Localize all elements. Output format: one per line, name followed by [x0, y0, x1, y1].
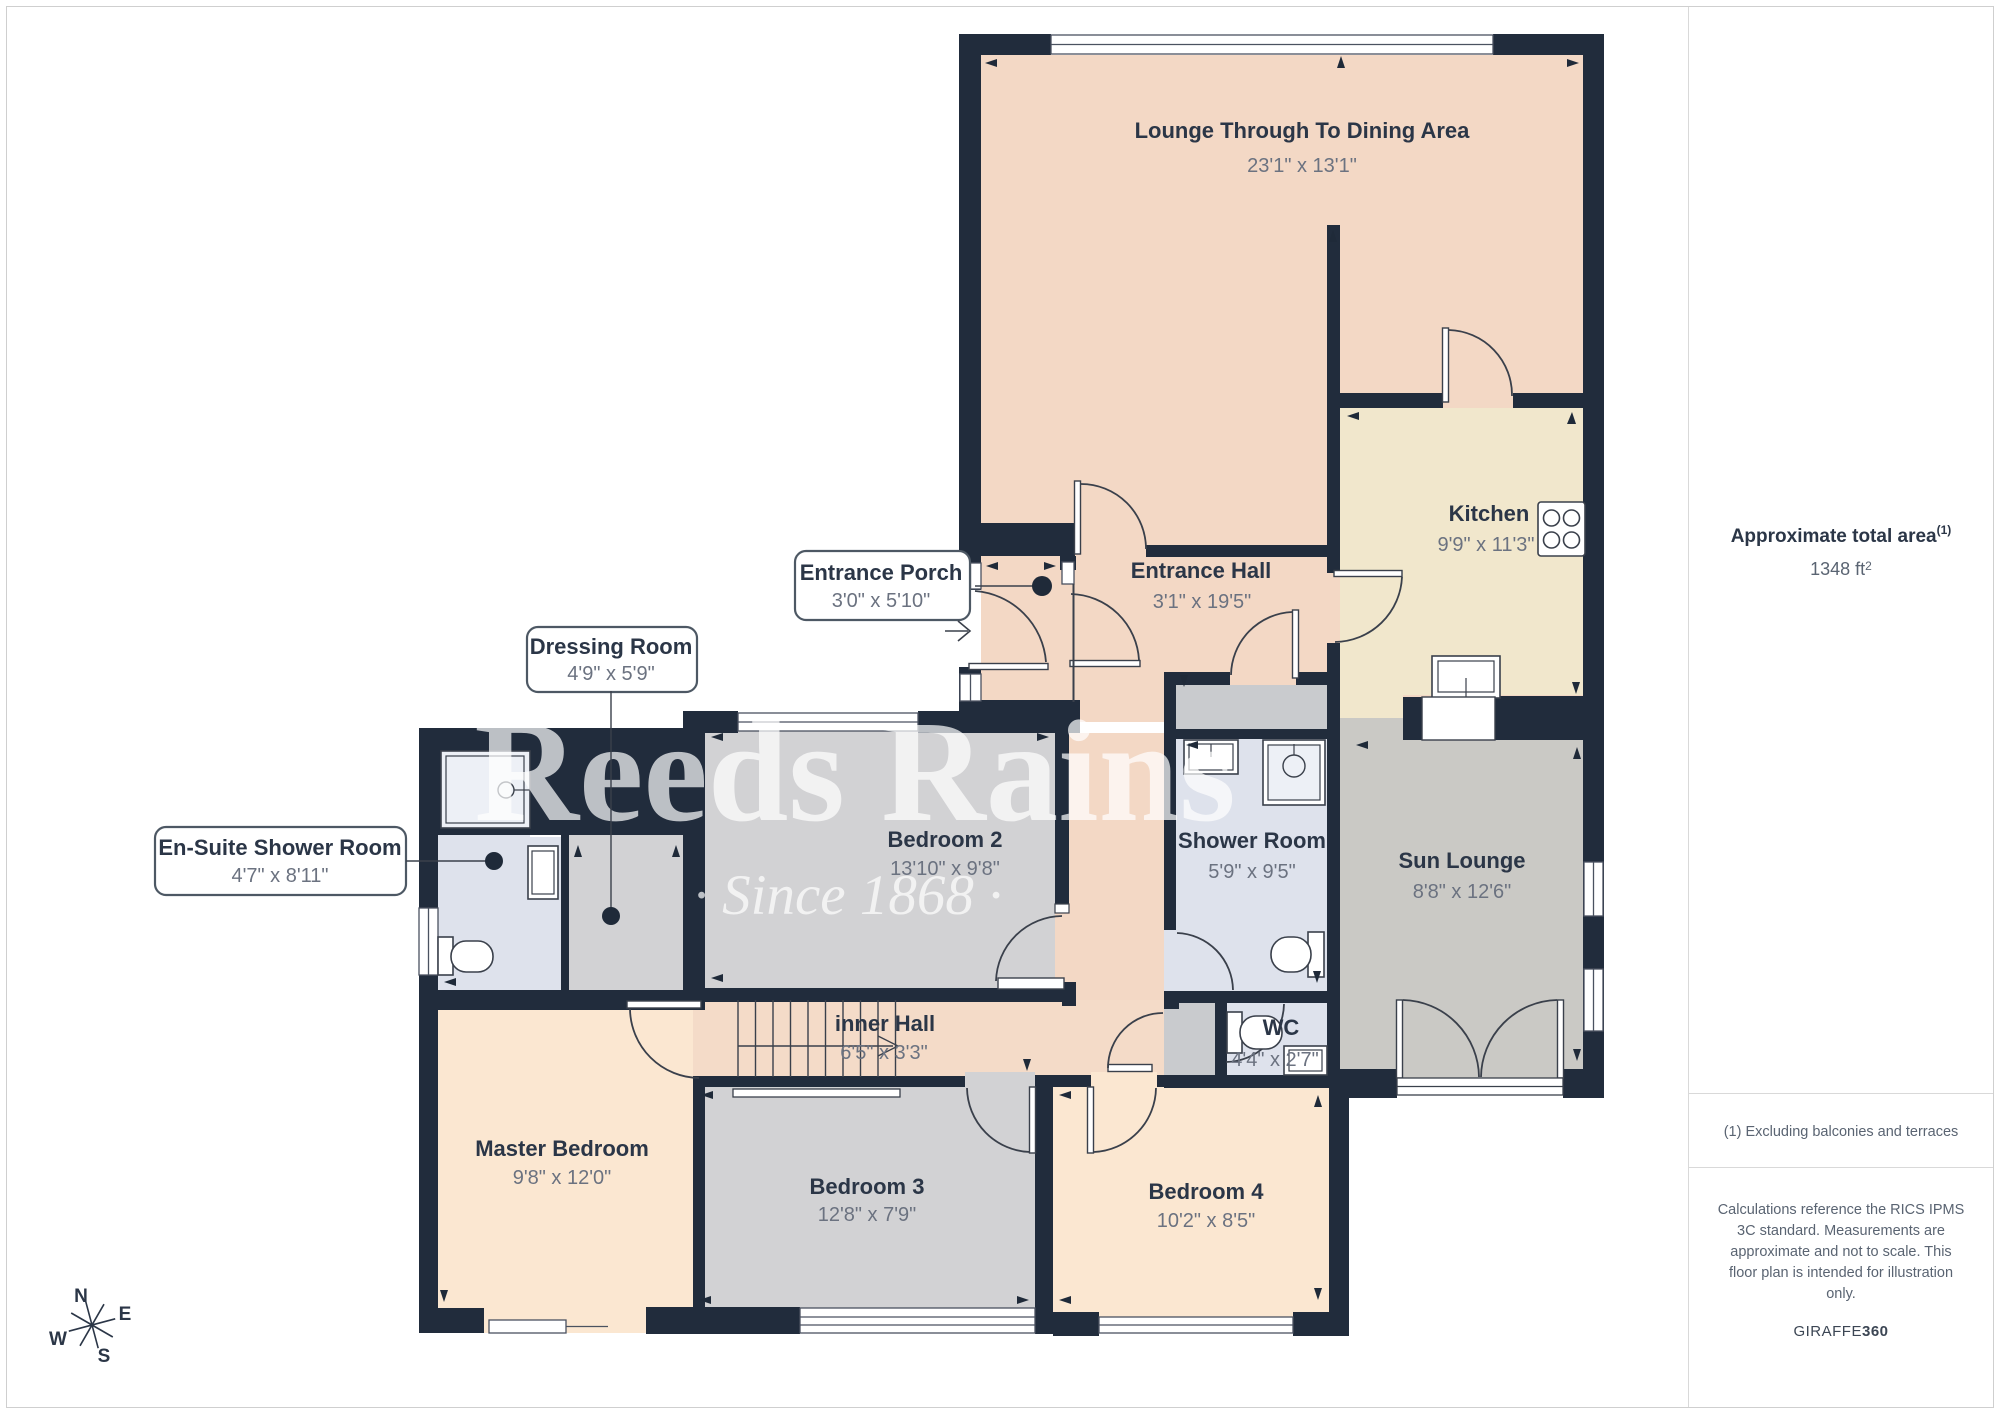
svg-text:Shower Room: Shower Room — [1178, 828, 1326, 853]
svg-text:4'4" x 2'7": 4'4" x 2'7" — [1231, 1049, 1318, 1071]
svg-text:inner Hall: inner Hall — [835, 1011, 935, 1036]
svg-text:3C standard. Measurements are: 3C standard. Measurements are — [1737, 1223, 1945, 1239]
svg-text:Bedroom 3: Bedroom 3 — [810, 1174, 925, 1199]
svg-text:S: S — [98, 1346, 111, 1367]
svg-text:GIRAFFE360: GIRAFFE360 — [1793, 1323, 1888, 1340]
svg-text:9'9" x 11'3": 9'9" x 11'3" — [1437, 534, 1534, 556]
svg-text:Kitchen: Kitchen — [1449, 501, 1530, 526]
svg-text:WC: WC — [1263, 1015, 1300, 1040]
svg-text:Reeds Rains: Reeds Rains — [474, 692, 1235, 852]
svg-text:Bedroom 2: Bedroom 2 — [888, 827, 1003, 852]
svg-text:9'8" x 12'0": 9'8" x 12'0" — [513, 1167, 612, 1189]
svg-text:Approximate total area(1): Approximate total area(1) — [1731, 523, 1952, 547]
svg-text:12'8" x 7'9": 12'8" x 7'9" — [818, 1204, 917, 1226]
svg-text:En-Suite Shower Room: En-Suite Shower Room — [158, 835, 401, 860]
svg-text:3'0" x 5'10": 3'0" x 5'10" — [832, 590, 931, 612]
svg-text:floor plan is intended for ill: floor plan is intended for illustration — [1729, 1265, 1953, 1281]
svg-text:10'2" x 8'5": 10'2" x 8'5" — [1157, 1210, 1256, 1232]
svg-text:6'5" x 3'3": 6'5" x 3'3" — [840, 1042, 927, 1064]
svg-text:E: E — [119, 1304, 132, 1325]
svg-text:3'1" x 19'5": 3'1" x 19'5" — [1153, 591, 1252, 613]
svg-text:5'9" x 9'5": 5'9" x 9'5" — [1208, 861, 1295, 883]
svg-text:23'1" x 13'1": 23'1" x 13'1" — [1247, 155, 1357, 177]
svg-text:approximate and not to scale.: approximate and not to scale. This — [1730, 1244, 1951, 1260]
svg-text:1348 ft2: 1348 ft2 — [1810, 559, 1872, 579]
svg-text:Dressing Room: Dressing Room — [530, 634, 693, 659]
svg-text:only.: only. — [1826, 1286, 1856, 1302]
svg-text:N: N — [74, 1286, 88, 1307]
svg-text:13'10" x 9'8": 13'10" x 9'8" — [890, 858, 1000, 880]
svg-text:Entrance Hall: Entrance Hall — [1131, 558, 1272, 583]
svg-text:Sun Lounge: Sun Lounge — [1398, 848, 1525, 873]
svg-text:Entrance Porch: Entrance Porch — [800, 560, 963, 585]
svg-text:W: W — [49, 1329, 67, 1350]
svg-text:4'7" x 8'11": 4'7" x 8'11" — [231, 865, 328, 887]
svg-text:Master Bedroom: Master Bedroom — [475, 1136, 649, 1161]
svg-text:(1) Excluding balconies and te: (1) Excluding balconies and terraces — [1724, 1124, 1959, 1140]
svg-text:Lounge Through To Dining Area: Lounge Through To Dining Area — [1135, 118, 1471, 143]
svg-text:4'9" x 5'9": 4'9" x 5'9" — [567, 663, 654, 685]
svg-text:Calculations reference the RIC: Calculations reference the RICS IPMS — [1718, 1202, 1965, 1218]
svg-text:8'8" x 12'6": 8'8" x 12'6" — [1413, 881, 1512, 903]
svg-text:Bedroom 4: Bedroom 4 — [1149, 1179, 1265, 1204]
